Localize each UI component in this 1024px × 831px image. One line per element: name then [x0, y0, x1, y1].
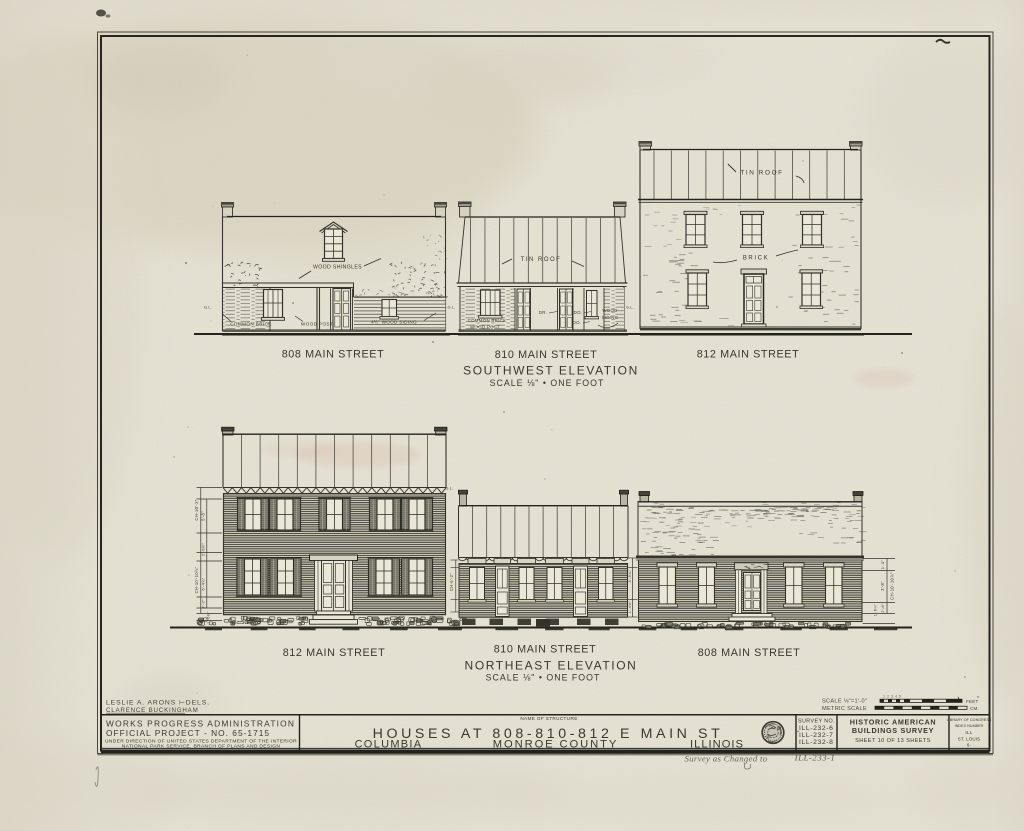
- svg-text:808 MAIN STREET: 808 MAIN STREET: [698, 647, 801, 659]
- svg-text:1'-6⅞": 1'-6⅞": [874, 603, 878, 616]
- svg-text:3: 3: [891, 695, 893, 699]
- svg-text:NORTHEAST ELEVATION: NORTHEAST ELEVATION: [465, 659, 638, 673]
- svg-text:1'-4¾": 1'-4¾": [628, 600, 632, 613]
- svg-text:COMMON BRICK: COMMON BRICK: [230, 322, 272, 327]
- svg-text:810 MAIN STREET: 810 MAIN STREET: [494, 644, 597, 656]
- svg-text:ILL-232-8: ILL-232-8: [799, 739, 834, 746]
- svg-text:ST. LOUIS: ST. LOUIS: [958, 737, 981, 742]
- svg-text:6'-4¾": 6'-4¾": [201, 577, 206, 590]
- svg-text:3'-5⅞": 3'-5⅞": [627, 569, 632, 582]
- svg-text:ILL: ILL: [965, 730, 972, 735]
- svg-text:INDEX NUMBER: INDEX NUMBER: [955, 724, 984, 728]
- svg-text:METRIC SCALE: METRIC SCALE: [822, 706, 867, 712]
- svg-text:G.L.: G.L.: [448, 306, 456, 310]
- svg-text:CH-10'-10⅞": CH-10'-10⅞": [890, 572, 895, 600]
- svg-text:ILL-232-6: ILL-232-6: [799, 725, 834, 732]
- svg-text:2'-6": 2'-6": [880, 603, 885, 613]
- svg-text:DO.: DO.: [574, 310, 583, 315]
- svg-text:808 MAIN STREET: 808 MAIN STREET: [282, 349, 385, 361]
- svg-text:812 MAIN STREET: 812 MAIN STREET: [697, 349, 800, 361]
- svg-text:WOOD POST: WOOD POST: [301, 322, 333, 327]
- svg-text:LESLIE A. ARONS ⊢DELS.: LESLIE A. ARONS ⊢DELS.: [106, 700, 210, 707]
- svg-text:LIBRARY OF CONGRESS: LIBRARY OF CONGRESS: [947, 718, 992, 722]
- svg-text:BRICK: BRICK: [743, 256, 769, 262]
- svg-text:810 MAIN STREET: 810 MAIN STREET: [495, 349, 598, 361]
- svg-text:1: 1: [883, 695, 885, 699]
- svg-text:OFFICIAL PROJECT - NO. 65-17: OFFICIAL PROJECT - NO. 65-1715: [106, 728, 270, 738]
- svg-text:ILL-233-1: ILL-233-1: [794, 753, 836, 763]
- svg-text:BUILDINGS SURVEY: BUILDINGS SURVEY: [852, 726, 934, 735]
- svg-text:SHEET 10 OF 13 SHEETS: SHEET 10 OF 13 SHEETS: [855, 738, 931, 744]
- svg-text:SCALE ⅛" • ONE FOOT: SCALE ⅛" • ONE FOOT: [486, 673, 601, 683]
- svg-text:6-: 6-: [967, 743, 972, 748]
- svg-text:CH-10'-10⅞": CH-10'-10⅞": [194, 566, 199, 593]
- svg-text:ILL-232-7: ILL-232-7: [799, 732, 834, 739]
- svg-text:1'-6¾": 1'-6¾": [207, 611, 211, 624]
- svg-text:WOOD: WOOD: [602, 308, 617, 313]
- svg-text:WOOD POST: WOOD POST: [470, 325, 500, 330]
- svg-text:SURVEY NO.: SURVEY NO.: [798, 718, 835, 724]
- svg-text:WOOD SHINGLES: WOOD SHINGLES: [313, 265, 362, 271]
- svg-text:ILLINOIS: ILLINOIS: [690, 738, 744, 750]
- svg-text:5'-8": 5'-8": [201, 511, 206, 521]
- svg-text:CH-10'-2": CH-10'-2": [194, 499, 199, 520]
- svg-text:SCALE ⅛"=1'-0": SCALE ⅛"=1'-0": [822, 699, 867, 705]
- svg-text:HISTORIC AMERICAN: HISTORIC AMERICAN: [850, 717, 937, 726]
- svg-text:NATIONAL PARK SERVICE, BRANCH: NATIONAL PARK SERVICE, BRANCH OF PLANS A…: [122, 743, 281, 749]
- svg-text:FEET: FEET: [966, 699, 979, 704]
- svg-text:G.L.: G.L.: [446, 487, 454, 491]
- svg-text:SOUTHWEST ELEVATION: SOUTHWEST ELEVATION: [463, 364, 639, 378]
- svg-text:2: 2: [887, 695, 889, 699]
- svg-text:TIN ROOF: TIN ROOF: [740, 170, 783, 177]
- svg-text:NAME OF STRUCTURE: NAME OF STRUCTURE: [520, 716, 577, 721]
- svg-text:SIDING: SIDING: [602, 315, 619, 320]
- svg-text:COLUMBIA: COLUMBIA: [355, 738, 423, 750]
- svg-text:COMMON BRICK: COMMON BRICK: [468, 318, 507, 323]
- svg-text:2'-0½": 2'-0½": [201, 543, 206, 556]
- svg-text:SCALE ⅛" • ONE FOOT: SCALE ⅛" • ONE FOOT: [490, 378, 605, 388]
- svg-text:G.L.: G.L.: [204, 306, 212, 310]
- svg-text:CH-6'-2": CH-6'-2": [449, 573, 454, 591]
- svg-text:MONROE COUNTY: MONROE COUNTY: [493, 738, 618, 750]
- svg-text:DO.: DO.: [573, 320, 582, 325]
- svg-text:CM.: CM.: [970, 706, 979, 711]
- svg-text:1'-0": 1'-0": [880, 559, 885, 569]
- svg-text:3'-8": 3'-8": [880, 581, 885, 591]
- svg-text:3'-2": 3'-2": [201, 599, 206, 609]
- svg-text:TIN ROOF: TIN ROOF: [521, 257, 562, 263]
- svg-text:Survey as Changed to: Survey as Changed to: [685, 754, 768, 764]
- svg-text:G.L.: G.L.: [626, 306, 634, 310]
- svg-text:4½" WOOD SIDING: 4½" WOOD SIDING: [371, 319, 417, 325]
- svg-text:4: 4: [895, 695, 897, 699]
- svg-text:DR.: DR.: [539, 310, 547, 315]
- svg-text:5: 5: [899, 695, 901, 699]
- svg-text:812 MAIN STREET: 812 MAIN STREET: [283, 647, 386, 659]
